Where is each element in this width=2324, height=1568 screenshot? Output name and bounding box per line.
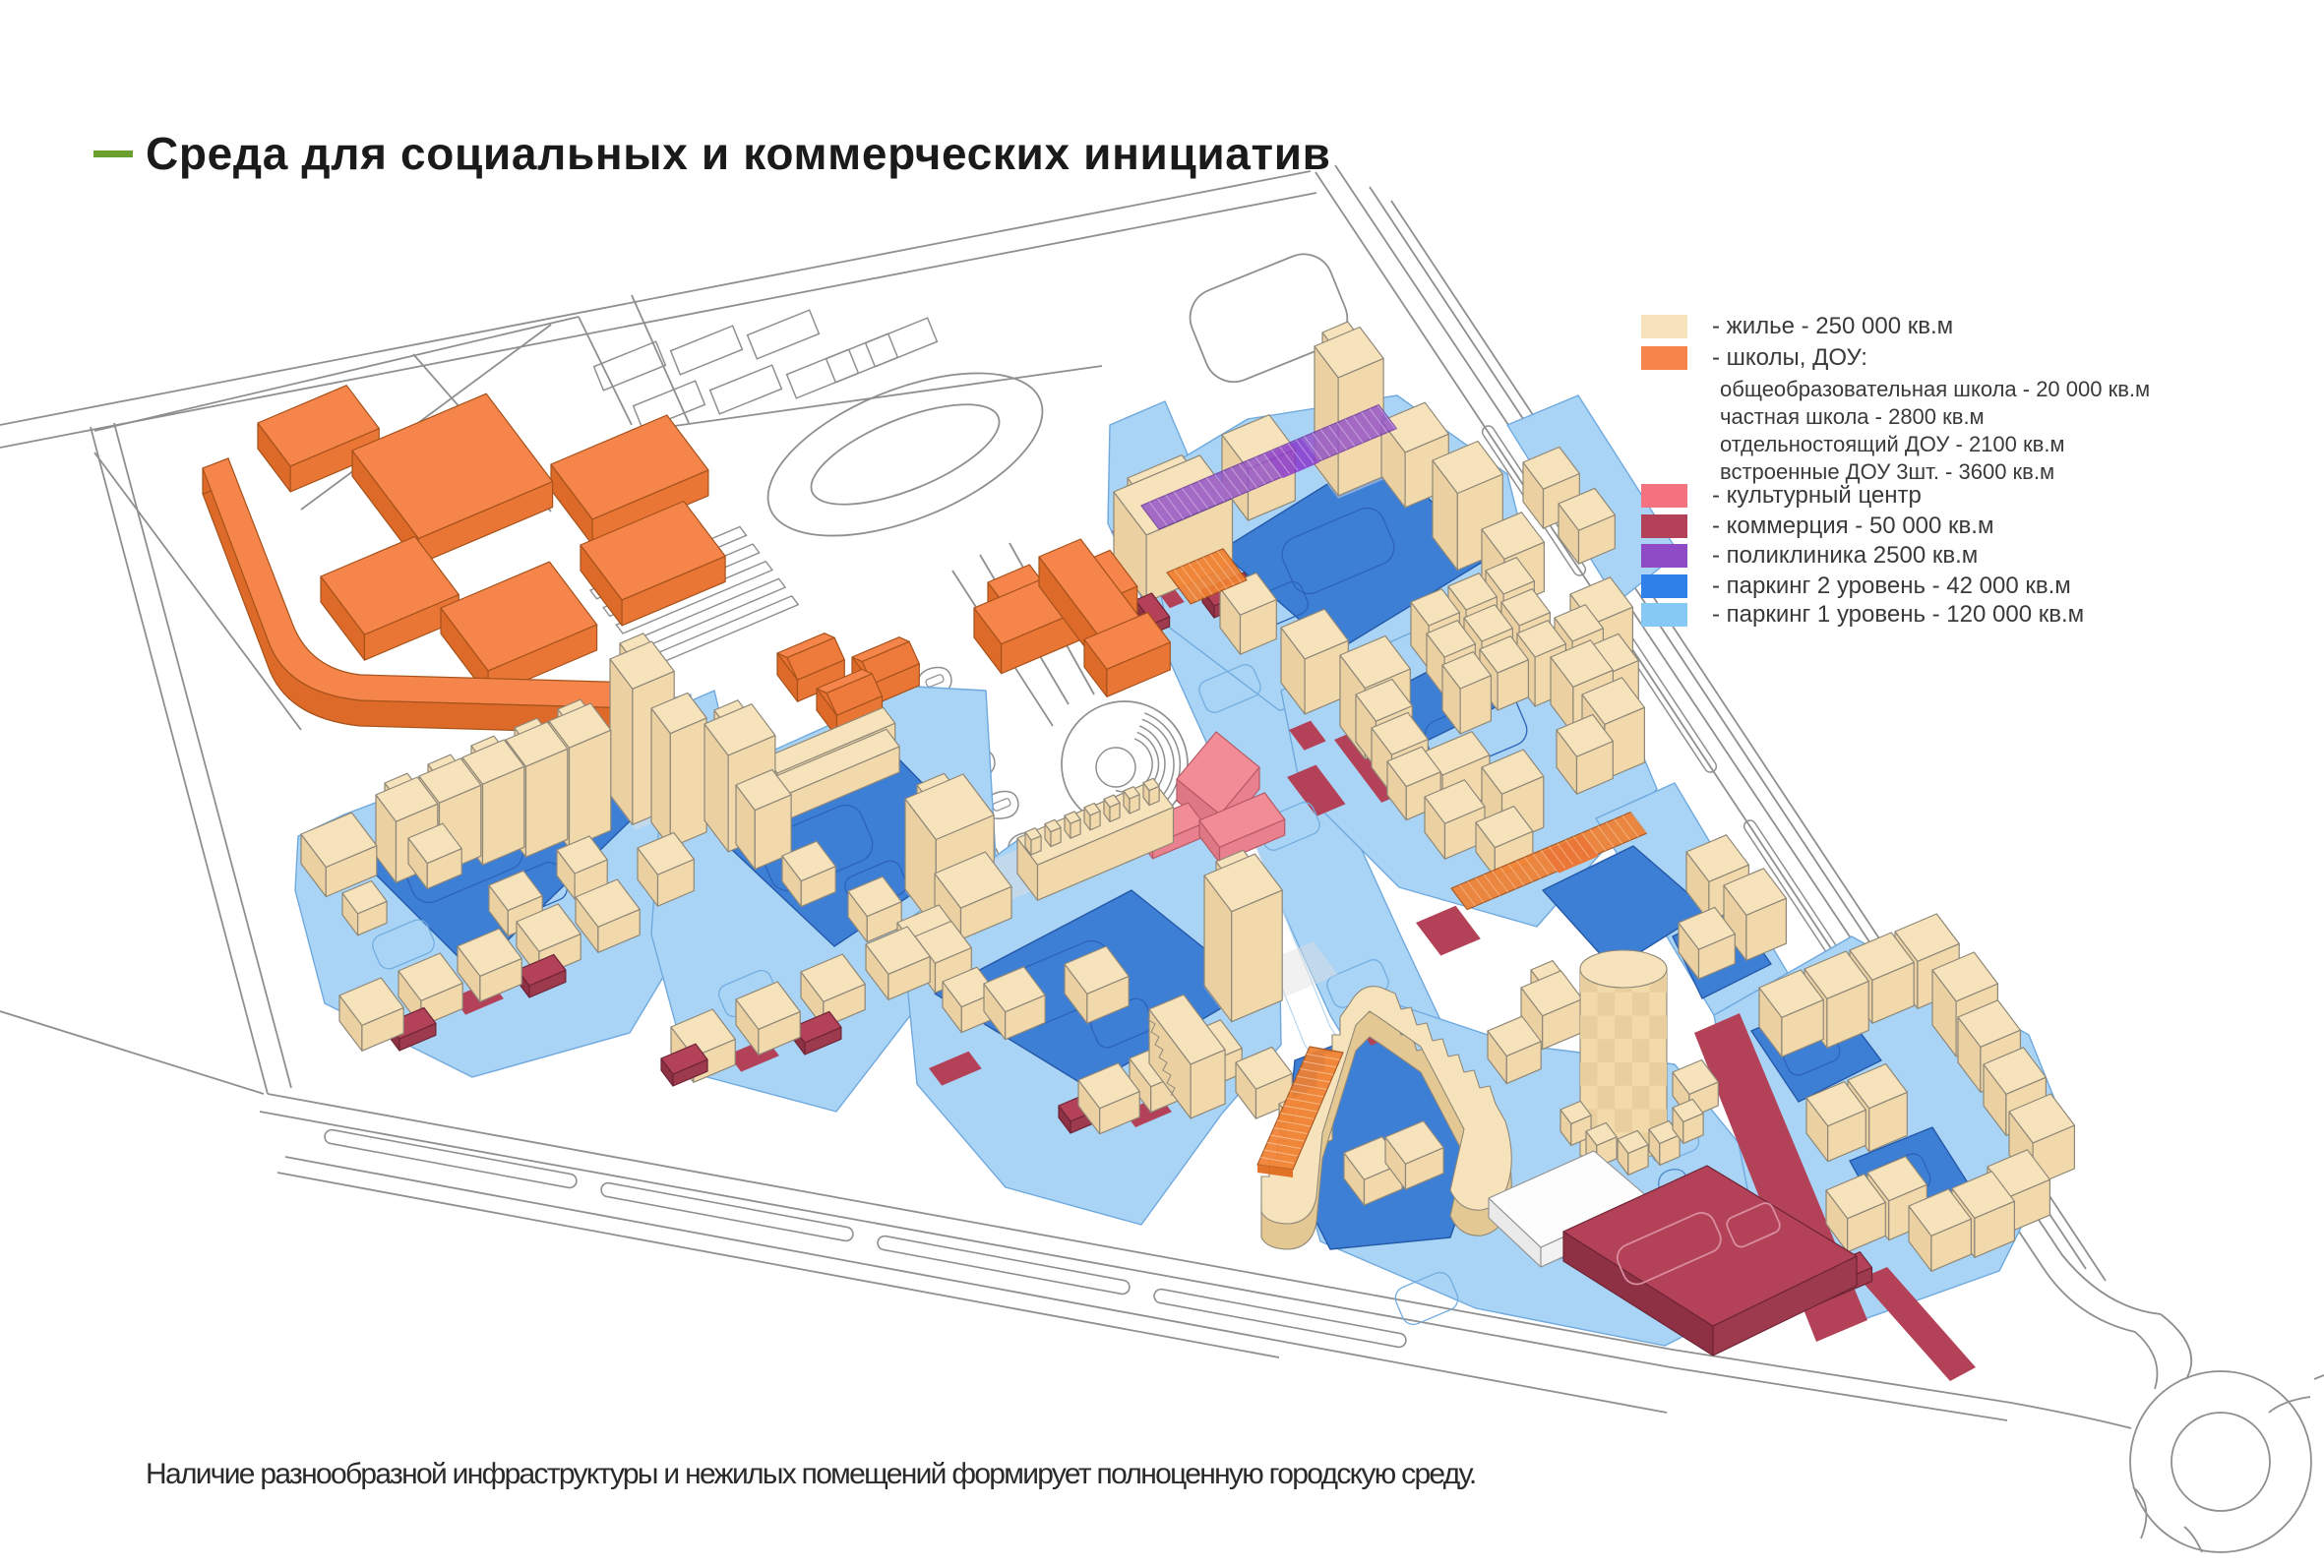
svg-text:- поликлиника 2500 кв.м: - поликлиника 2500 кв.м <box>1712 542 1978 569</box>
svg-text:частная школа - 2800 кв.м: частная школа - 2800 кв.м <box>1720 404 1985 429</box>
svg-text:- коммерция - 50 000 кв.м: - коммерция - 50 000 кв.м <box>1712 513 1993 539</box>
svg-text:- паркинг 2 уровень - 42 000 к: - паркинг 2 уровень - 42 000 кв.м <box>1712 573 2071 599</box>
svg-text:Среда для социальных и коммерч: Среда для социальных и коммерческих иниц… <box>146 128 1331 179</box>
svg-text:- школы, ДОУ:: - школы, ДОУ: <box>1712 344 1867 371</box>
svg-text:- жилье - 250 000 кв.м: - жилье - 250 000 кв.м <box>1712 313 1953 339</box>
svg-text:отдельностоящий ДОУ - 2100 кв.: отдельностоящий ДОУ - 2100 кв.м <box>1720 432 2065 456</box>
svg-text:встроенные ДОУ 3шт. - 3600 кв.: встроенные ДОУ 3шт. - 3600 кв.м <box>1720 459 2054 484</box>
svg-text:Наличие разнообразной инфрастр: Наличие разнообразной инфраструктуры и н… <box>146 1458 1476 1490</box>
svg-text:- культурный центр: - культурный центр <box>1712 482 1922 509</box>
svg-text:- паркинг 1 уровень - 120 000: - паркинг 1 уровень - 120 000 кв.м <box>1712 601 2084 628</box>
svg-text:общеобразовательная школа - 20: общеобразовательная школа - 20 000 кв.м <box>1720 377 2150 401</box>
